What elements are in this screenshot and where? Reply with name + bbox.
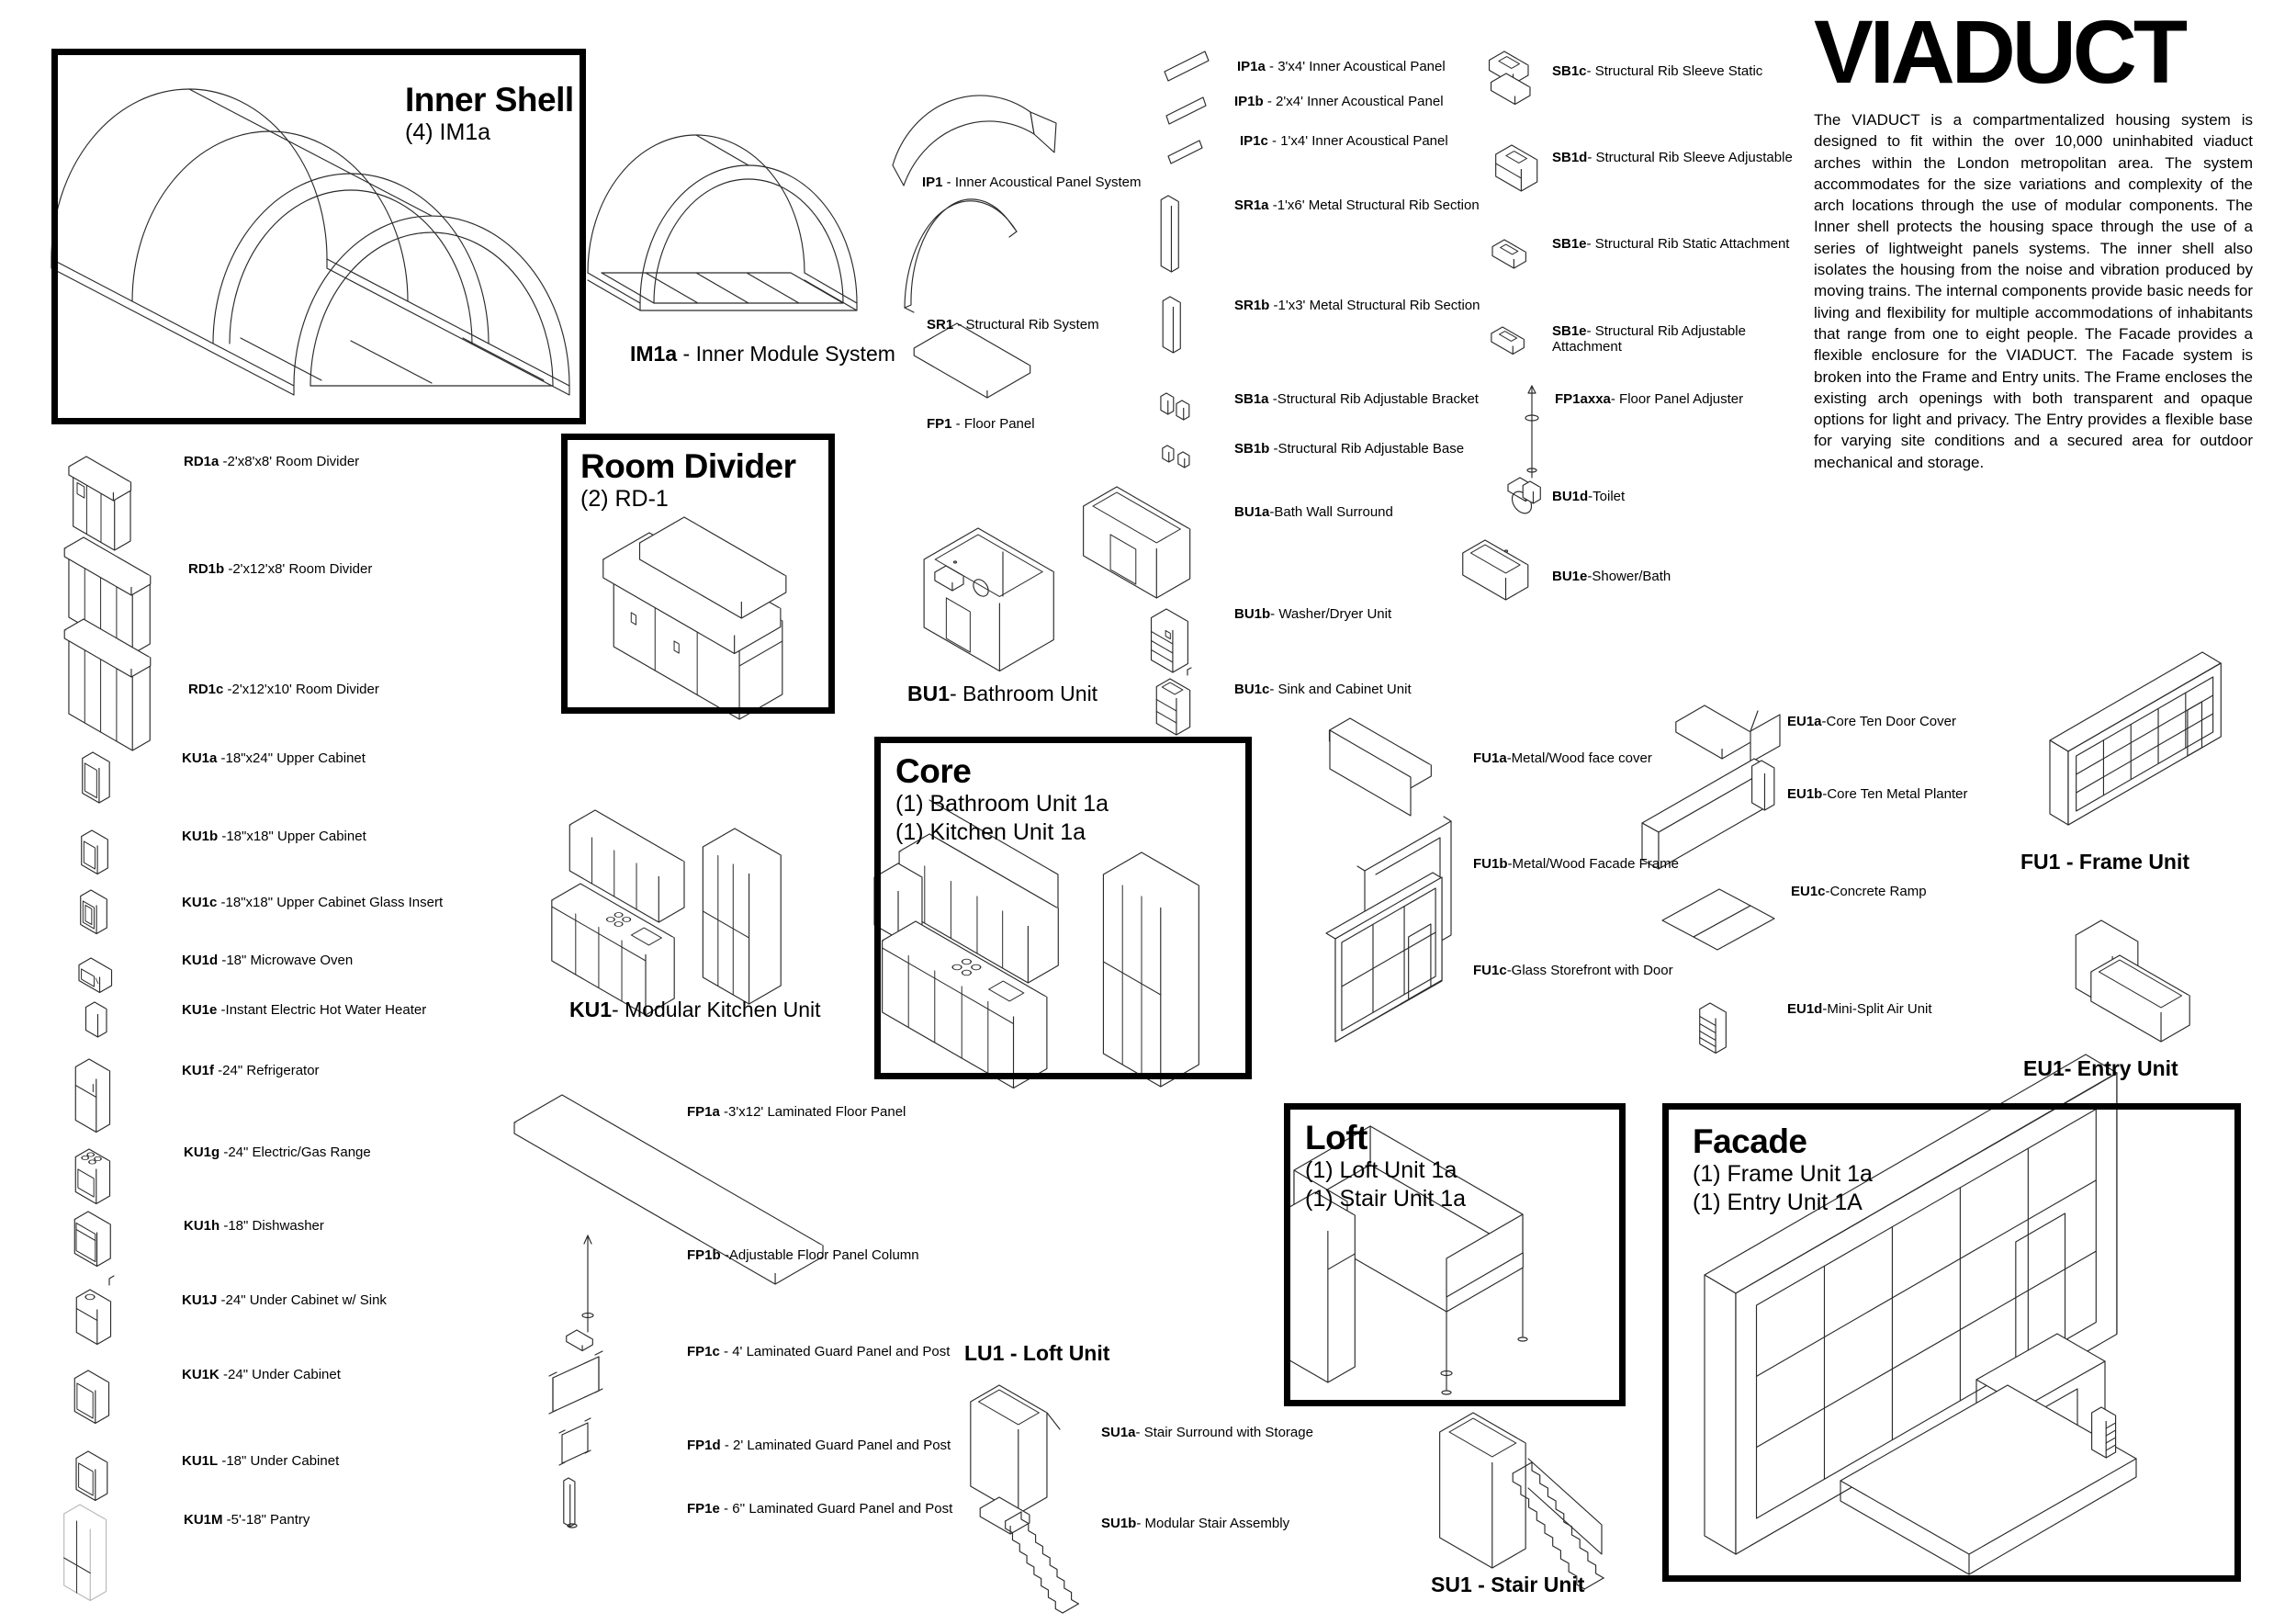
label-ku1d-6: KU1d -18" Microwave Oven — [182, 953, 353, 968]
label-desc: - Floor Panel Adjuster — [1611, 391, 1743, 407]
label-code: IP1b — [1234, 94, 1264, 109]
ku1j-drawing — [76, 1276, 114, 1345]
label-desc: - 1'x4' Inner Acoustical Panel — [1268, 133, 1448, 149]
facade-box: Facade (1) Frame Unit 1a (1) Entry Unit … — [1662, 1103, 2241, 1582]
ku1e-drawing — [85, 1002, 107, 1037]
label-fu1c-40: FU1c-Glass Storefront with Door — [1473, 963, 1673, 978]
bu1c-sink-drawing — [1156, 668, 1191, 735]
ip1-drawing — [893, 96, 1056, 186]
fu1a-face-cover-drawing — [1329, 718, 1431, 816]
label-desc: -Structural Rib Adjustable Bracket — [1269, 391, 1479, 407]
ku1f-drawing — [75, 1059, 109, 1133]
label-ku1f-8: KU1f -24" Refrigerator — [182, 1063, 320, 1078]
label-rd1b-1: RD1b -2'x12'x8' Room Divider — [188, 561, 372, 577]
label-su1a-53: SU1a- Stair Surround with Storage — [1101, 1425, 1313, 1440]
label-code: RD1b — [188, 561, 224, 577]
sr1-drawing — [905, 199, 1017, 312]
label-code: FP1axxa — [1555, 391, 1611, 407]
label-bu1d-34: BU1d-Toilet — [1552, 489, 1625, 504]
label-code: IP1a — [1237, 59, 1266, 74]
fp1b-column-drawing — [567, 1235, 593, 1351]
label-desc: -Shower/Bath — [1587, 569, 1671, 584]
label-desc: -Structural Rib Adjustable Base — [1269, 441, 1464, 457]
fp1c-guard-drawing — [549, 1351, 602, 1414]
label-code: KU1L — [182, 1453, 218, 1469]
label-desc: - Washer/Dryer Unit — [1270, 606, 1391, 622]
room-divider-subtitle: (2) RD-1 — [580, 485, 796, 513]
label-bu1e-35: BU1e-Shower/Bath — [1552, 569, 1671, 584]
core-subtitle-2: (1) Kitchen Unit 1a — [895, 818, 1109, 847]
label-fp1a-47: FP1a -3'x12' Laminated Floor Panel — [687, 1104, 906, 1120]
label-ip1a-19: IP1a - 3'x4' Inner Acoustical Panel — [1237, 59, 1446, 74]
label-desc: -18" Dishwasher — [219, 1218, 324, 1234]
label-desc: -3'x12' Laminated Floor Panel — [720, 1104, 906, 1120]
ku1m-drawing — [64, 1505, 107, 1601]
label-code: KU1h — [184, 1218, 219, 1234]
label-bu1b-27: BU1b- Washer/Dryer Unit — [1234, 606, 1391, 622]
label-ku1c-5: KU1c -18"x18" Upper Cabinet Glass Insert — [182, 895, 443, 910]
ku1g-drawing — [75, 1149, 109, 1204]
label-sr1b-23: SR1b -1'x3' Metal Structural Rib Section — [1234, 298, 1480, 313]
label-ku1g-9: KU1g -24" Electric/Gas Range — [184, 1145, 371, 1160]
label-im1a-18: IM1a - Inner Module System — [630, 342, 895, 366]
label-desc: -Toilet — [1588, 489, 1625, 504]
label-desc: -Concrete Ramp — [1826, 884, 1927, 899]
label-desc: - 3'x4' Inner Acoustical Panel — [1266, 59, 1446, 74]
label-code: EU1d — [1787, 1001, 1822, 1017]
label-bu1-36: BU1- Bathroom Unit — [907, 682, 1097, 705]
label-code: KU1b — [182, 829, 218, 844]
su1a-surround-drawing — [971, 1385, 1060, 1514]
label-desc: - Inner Acoustical Panel System — [943, 175, 1142, 190]
label-desc: - Floor Panel — [952, 416, 1035, 432]
label-eu1-46: EU1- Entry Unit — [2023, 1056, 2178, 1080]
sb1a-bracket-drawing — [1161, 393, 1189, 420]
label-desc: -2'x12'x10' Room Divider — [223, 682, 379, 697]
label-code: KU1J — [182, 1292, 217, 1308]
label-desc: -Core Ten Door Cover — [1822, 714, 1956, 729]
label-rd1c-2: RD1c -2'x12'x10' Room Divider — [188, 682, 379, 697]
label-desc: -1'x3' Metal Structural Rib Section — [1269, 298, 1480, 313]
facade-subtitle-1: (1) Frame Unit 1a — [1693, 1160, 1873, 1189]
label-code: SU1a — [1101, 1425, 1136, 1440]
label-desc: - Loft Unit — [1004, 1341, 1109, 1365]
fp1d-guard-drawing — [559, 1418, 591, 1465]
label-desc: -Metal/Wood face cover — [1507, 750, 1652, 766]
label-su1b-54: SU1b- Modular Stair Assembly — [1101, 1516, 1289, 1531]
label-code: IP1c — [1240, 133, 1268, 149]
label-fu1-45: FU1 - Frame Unit — [2020, 850, 2189, 874]
label-code: FU1b — [1473, 856, 1508, 872]
label-ku1b-4: KU1b -18"x18" Upper Cabinet — [182, 829, 366, 844]
label-code: SU1 — [1431, 1573, 1472, 1596]
label-ku1k-12: KU1K -24" Under Cabinet — [182, 1367, 341, 1382]
label-code: BU1 — [907, 682, 950, 705]
label-code: KU1d — [182, 953, 218, 968]
label-desc: - Stair Unit — [1472, 1573, 1585, 1596]
label-code: BU1e — [1552, 569, 1587, 584]
label-eu1c-43: EU1c-Concrete Ramp — [1791, 884, 1927, 899]
label-code: SB1d — [1552, 150, 1587, 165]
room-divider-title: Room Divider — [580, 449, 796, 485]
label-lu1-50: LU1 - Loft Unit — [964, 1341, 1109, 1365]
core-box: Core (1) Bathroom Unit 1a (1) Kitchen Un… — [874, 737, 1252, 1079]
label-ip1c-21: IP1c - 1'x4' Inner Acoustical Panel — [1240, 133, 1448, 149]
label-fp1b-48: FP1b -Adjustable Floor Panel Column — [687, 1247, 919, 1263]
label-code: EU1c — [1791, 884, 1826, 899]
fp1e-post-drawing — [564, 1478, 577, 1528]
label-fp1d-51: FP1d - 2' Laminated Guard Panel and Post — [687, 1438, 951, 1453]
label-fu1b-39: FU1b-Metal/Wood Facade Frame — [1473, 856, 1679, 872]
core-title: Core — [895, 754, 1109, 790]
label-sr1a-22: SR1a -1'x6' Metal Structural Rib Section — [1234, 197, 1480, 213]
sb1b-base-drawing — [1163, 445, 1189, 468]
label-desc: -Core Ten Metal Planter — [1822, 786, 1967, 802]
label-code: KU1 — [569, 998, 612, 1021]
eu1-entry-unit-drawing — [2076, 920, 2189, 1042]
facade-title: Facade — [1693, 1124, 1873, 1160]
label-sb1c-29: SB1c- Structural Rib Sleeve Static — [1552, 63, 1762, 79]
label-desc: - 6'' Laminated Guard Panel and Post — [720, 1501, 952, 1517]
label-code: SB1a — [1234, 391, 1269, 407]
label-desc: - Stair Surround with Storage — [1136, 1425, 1313, 1440]
label-ip1-15: IP1 - Inner Acoustical Panel System — [922, 175, 1141, 190]
label-sr1-16: SR1 - Structural Rib System — [927, 317, 1099, 333]
loft-subtitle-2: (1) Stair Unit 1a — [1305, 1185, 1466, 1213]
inner-shell-box: Inner Shell (4) IM1a — [51, 49, 586, 424]
sb1e-adjustable-drawing — [1491, 327, 1525, 355]
ku1d-drawing — [79, 958, 112, 993]
ku1l-drawing — [76, 1451, 107, 1501]
ku1c-drawing — [81, 890, 107, 934]
facade-subtitle-2: (1) Entry Unit 1A — [1693, 1189, 1873, 1217]
label-desc: -18"x18" Upper Cabinet — [218, 829, 366, 844]
label-desc: - Structural Rib Sleeve Static — [1587, 63, 1763, 79]
label-code: FP1e — [687, 1501, 720, 1517]
label-fp1-17: FP1 - Floor Panel — [927, 416, 1035, 432]
inner-shell-subtitle: (4) IM1a — [405, 118, 574, 147]
ku1-kitchen-drawing — [552, 810, 781, 1015]
label-desc: - Frame Unit — [2060, 850, 2189, 874]
viaduct-component-sheet: Inner Shell (4) IM1a Room Divider (2) RD… — [0, 0, 2296, 1624]
label-sb1e-32: SB1e- Structural Rib Adjustable Attachme… — [1552, 323, 1777, 355]
label-eu1d-44: EU1d-Mini-Split Air Unit — [1787, 1001, 1932, 1017]
label-desc: -Mini-Split Air Unit — [1822, 1001, 1931, 1017]
label-code: SU1b — [1101, 1516, 1136, 1531]
label-desc: -2'x12'x8' Room Divider — [224, 561, 372, 577]
ku1b-drawing — [82, 830, 108, 874]
label-code: BU1c — [1234, 682, 1269, 697]
label-code: EU1 — [2023, 1056, 2065, 1080]
label-code: KU1a — [182, 750, 217, 766]
label-fp1e-52: FP1e - 6'' Laminated Guard Panel and Pos… — [687, 1501, 952, 1517]
label-desc: -Instant Electric Hot Water Heater — [217, 1002, 426, 1018]
loft-subtitle-1: (1) Loft Unit 1a — [1305, 1156, 1466, 1185]
ip1a-panel-drawing — [1165, 51, 1209, 81]
label-code: FP1c — [687, 1344, 720, 1359]
label-code: SB1b — [1234, 441, 1269, 457]
label-desc: -2'x8'x8' Room Divider — [219, 454, 359, 469]
eu1d-minisplit-drawing — [1700, 1003, 1727, 1054]
label-bu1c-28: BU1c- Sink and Cabinet Unit — [1234, 682, 1412, 697]
label-desc: - Sink and Cabinet Unit — [1269, 682, 1411, 697]
eu1b-planter-drawing — [1642, 759, 1774, 869]
label-code: SB1c — [1552, 63, 1587, 79]
label-desc: - Structural Rib Static Attachment — [1587, 236, 1790, 252]
label-desc: - 4' Laminated Guard Panel and Post — [720, 1344, 951, 1359]
bu1-bathroom-unit-drawing — [924, 528, 1053, 671]
label-ku1a-3: KU1a -18"x24" Upper Cabinet — [182, 750, 366, 766]
label-code: KU1M — [184, 1512, 223, 1528]
label-fu1a-38: FU1a-Metal/Wood face cover — [1473, 750, 1652, 766]
label-code: EU1b — [1787, 786, 1822, 802]
label-eu1a-41: EU1a-Core Ten Door Cover — [1787, 714, 1956, 729]
label-rd1a-0: RD1a -2'x8'x8' Room Divider — [184, 454, 359, 469]
label-code: IM1a — [630, 342, 677, 366]
label-desc: - 2'x4' Inner Acoustical Panel — [1264, 94, 1444, 109]
label-su1-55: SU1 - Stair Unit — [1431, 1573, 1584, 1596]
label-desc: -Metal/Wood Facade Frame — [1508, 856, 1679, 872]
label-ku1j-11: KU1J -24" Under Cabinet w/ Sink — [182, 1292, 387, 1308]
eu1a-door-cover-drawing — [1676, 705, 1780, 762]
label-desc: -1'x6' Metal Structural Rib Section — [1269, 197, 1480, 213]
label-desc: - Structural Rib System — [953, 317, 1098, 333]
sr1a-bar-drawing — [1161, 196, 1178, 272]
label-sb1d-30: SB1d- Structural Rib Sleeve Adjustable — [1552, 150, 1793, 165]
label-code: KU1K — [182, 1367, 219, 1382]
label-desc: -18"x18" Upper Cabinet Glass Insert — [217, 895, 443, 910]
sb1c-sleeve-drawing — [1490, 51, 1530, 105]
label-code: KU1e — [182, 1002, 217, 1018]
label-code: SB1e — [1552, 323, 1587, 339]
page-title: VIADUCT — [1814, 7, 2253, 96]
label-code: FU1a — [1473, 750, 1507, 766]
bu1e-shower-drawing — [1463, 540, 1528, 600]
label-code: BU1a — [1234, 504, 1269, 520]
su1b-stair-drawing — [980, 1497, 1078, 1613]
description-paragraph: The VIADUCT is a compartmentalized housi… — [1814, 109, 2253, 473]
label-code: FP1d — [687, 1438, 721, 1453]
label-code: LU1 — [964, 1341, 1004, 1365]
label-code: KU1c — [182, 895, 217, 910]
label-desc: -Bath Wall Surround — [1269, 504, 1393, 520]
label-code: SR1 — [927, 317, 953, 333]
label-desc: -Adjustable Floor Panel Column — [721, 1247, 919, 1263]
label-sb1b-25: SB1b -Structural Rib Adjustable Base — [1234, 441, 1464, 457]
label-sb1e-31: SB1e- Structural Rib Static Attachment — [1552, 236, 1789, 252]
label-code: BU1d — [1552, 489, 1588, 504]
ku1k-drawing — [74, 1370, 108, 1424]
label-code: RD1c — [188, 682, 223, 697]
label-code: IP1 — [922, 175, 943, 190]
fp1-drawing — [914, 323, 1030, 398]
masthead: VIADUCT The VIADUCT is a compartmentaliz… — [1814, 7, 2253, 473]
label-fp1axxa-33: FP1axxa- Floor Panel Adjuster — [1555, 391, 1743, 407]
loft-box: Loft (1) Loft Unit 1a (1) Stair Unit 1a — [1284, 1103, 1626, 1406]
sr1b-bar-drawing — [1163, 297, 1180, 353]
eu1c-ramp-drawing — [1662, 889, 1774, 950]
label-desc: -24" Under Cabinet — [219, 1367, 341, 1382]
room-divider-box: Room Divider (2) RD-1 — [561, 434, 835, 714]
label-code: SR1a — [1234, 197, 1269, 213]
label-ku1m-14: KU1M -5'-18" Pantry — [184, 1512, 310, 1528]
su1-stair-unit-drawing — [1440, 1413, 1604, 1589]
fu1-frame-unit-drawing — [2050, 652, 2221, 825]
label-code: KU1g — [184, 1145, 219, 1160]
label-desc: - Structural Rib Sleeve Adjustable — [1587, 150, 1792, 165]
core-subtitle-1: (1) Bathroom Unit 1a — [895, 790, 1109, 818]
label-desc: -24" Electric/Gas Range — [219, 1145, 371, 1160]
sb1e-static-drawing — [1492, 240, 1525, 268]
label-code: EU1a — [1787, 714, 1822, 729]
label-code: KU1f — [182, 1063, 214, 1078]
label-eu1b-42: EU1b-Core Ten Metal Planter — [1787, 786, 1967, 802]
label-desc: - Bathroom Unit — [950, 682, 1097, 705]
ip1c-panel-drawing — [1168, 141, 1202, 164]
label-code: FP1b — [687, 1247, 721, 1263]
label-ku1l-13: KU1L -18" Under Cabinet — [182, 1453, 339, 1469]
label-desc: -18"x24" Upper Cabinet — [217, 750, 366, 766]
label-desc: -18" Microwave Oven — [218, 953, 353, 968]
ku1a-drawing — [83, 752, 109, 803]
label-desc: - Modular Stair Assembly — [1136, 1516, 1289, 1531]
bu1b-washer-drawing — [1152, 609, 1188, 672]
im1a-drawing — [588, 135, 857, 310]
label-code: FU1c — [1473, 963, 1507, 978]
inner-shell-title: Inner Shell — [405, 83, 574, 118]
label-fp1c-49: FP1c - 4' Laminated Guard Panel and Post — [687, 1344, 950, 1359]
label-code: FU1 — [2020, 850, 2060, 874]
label-desc: -Glass Storefront with Door — [1507, 963, 1673, 978]
label-ip1b-20: IP1b - 2'x4' Inner Acoustical Panel — [1234, 94, 1444, 109]
rd1a-drawing — [69, 457, 131, 550]
label-code: SR1b — [1234, 298, 1269, 313]
bu1a-surround-drawing — [1084, 487, 1190, 598]
label-desc: - Inner Module System — [677, 342, 895, 366]
label-code: FP1a — [687, 1104, 720, 1120]
label-ku1h-10: KU1h -18" Dishwasher — [184, 1218, 324, 1234]
label-desc: -18" Under Cabinet — [218, 1453, 339, 1469]
ip1b-panel-drawing — [1166, 97, 1206, 124]
loft-title: Loft — [1305, 1121, 1466, 1156]
label-ku1-37: KU1- Modular Kitchen Unit — [569, 998, 821, 1021]
label-desc: -24" Under Cabinet w/ Sink — [217, 1292, 387, 1308]
label-code: BU1b — [1234, 606, 1270, 622]
label-desc: -5'-18" Pantry — [223, 1512, 310, 1528]
label-bu1a-26: BU1a-Bath Wall Surround — [1234, 504, 1393, 520]
label-desc: - Entry Unit — [2065, 1056, 2178, 1080]
label-desc: - 2' Laminated Guard Panel and Post — [721, 1438, 951, 1453]
label-desc: -24" Refrigerator — [214, 1063, 320, 1078]
label-code: SB1e — [1552, 236, 1587, 252]
label-ku1e-7: KU1e -Instant Electric Hot Water Heater — [182, 1002, 426, 1018]
label-sb1a-24: SB1a -Structural Rib Adjustable Bracket — [1234, 391, 1479, 407]
sb1d-sleeve-drawing — [1496, 145, 1537, 191]
label-code: RD1a — [184, 454, 219, 469]
label-desc: - Modular Kitchen Unit — [612, 998, 821, 1021]
ku1h-drawing — [74, 1212, 110, 1267]
label-code: FP1 — [927, 416, 952, 432]
